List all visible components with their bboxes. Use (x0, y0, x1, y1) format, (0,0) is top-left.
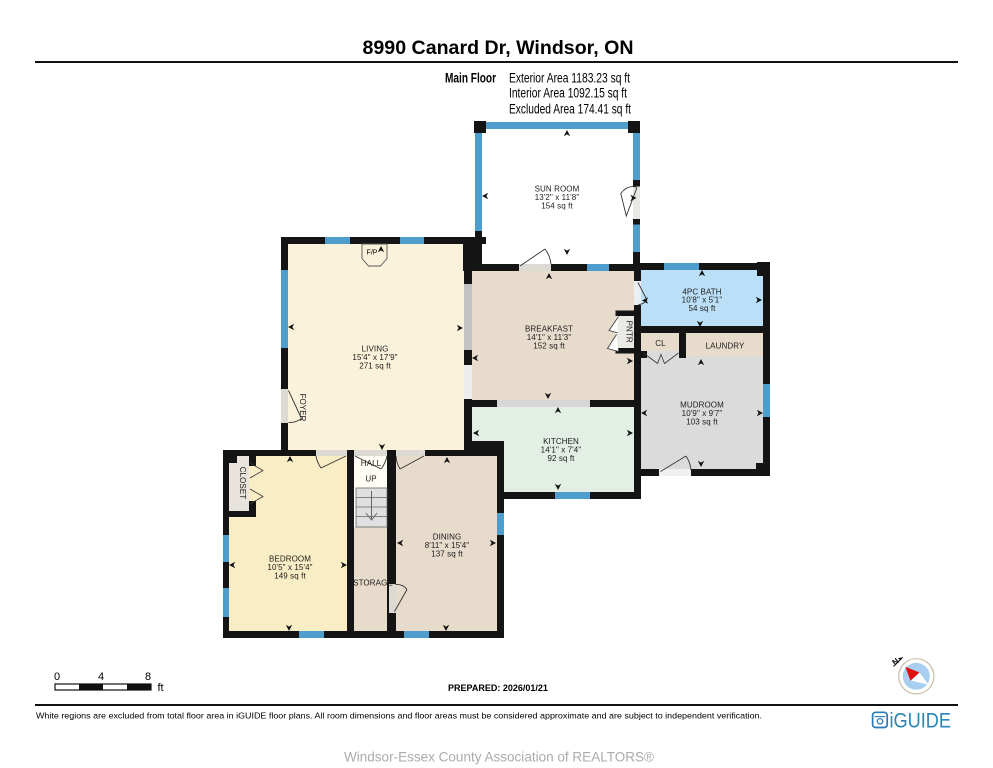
svg-text:PNTR: PNTR (625, 321, 634, 343)
svg-text:Interior Area 1092.15 sq ft: Interior Area 1092.15 sq ft (509, 86, 627, 101)
svg-text:CL: CL (655, 339, 666, 348)
svg-text:103 sq ft: 103 sq ft (686, 417, 718, 426)
svg-text:Windsor-Essex County Associati: Windsor-Essex County Association of REAL… (344, 750, 654, 765)
svg-text:LAUNDRY: LAUNDRY (706, 341, 745, 350)
svg-text:8: 8 (145, 671, 151, 683)
svg-text:PREPARED: 2026/01/21: PREPARED: 2026/01/21 (448, 683, 548, 693)
svg-text:149 sq ft: 149 sq ft (274, 572, 306, 581)
svg-text:FOYER: FOYER (298, 393, 307, 421)
svg-text:0: 0 (54, 671, 60, 683)
svg-text:ft: ft (158, 682, 164, 694)
svg-text:Exterior Area 1183.23 sq ft: Exterior Area 1183.23 sq ft (509, 71, 630, 86)
svg-text:8990 Canard Dr, Windsor, ON: 8990 Canard Dr, Windsor, ON (363, 37, 634, 59)
svg-text:92 sq ft: 92 sq ft (547, 454, 575, 463)
svg-text:iGUIDE: iGUIDE (890, 710, 952, 733)
svg-text:STORAGE: STORAGE (353, 579, 393, 588)
svg-text:Excluded Area 174.41 sq ft: Excluded Area 174.41 sq ft (509, 101, 631, 116)
svg-text:UP: UP (365, 475, 376, 484)
svg-text:137 sq ft: 137 sq ft (431, 549, 463, 558)
svg-text:Main Floor: Main Floor (445, 71, 497, 86)
svg-text:152 sq ft: 152 sq ft (533, 341, 565, 350)
svg-text:White regions are excluded fro: White regions are excluded from total fl… (36, 711, 762, 721)
svg-text:CLOSET: CLOSET (238, 467, 247, 500)
svg-text:F/P: F/P (367, 250, 378, 257)
svg-text:4: 4 (98, 671, 104, 683)
svg-text:271 sq ft: 271 sq ft (359, 361, 391, 370)
svg-text:54 sq ft: 54 sq ft (688, 304, 716, 313)
svg-text:154 sq ft: 154 sq ft (541, 201, 573, 210)
svg-text:HALL: HALL (361, 459, 382, 468)
